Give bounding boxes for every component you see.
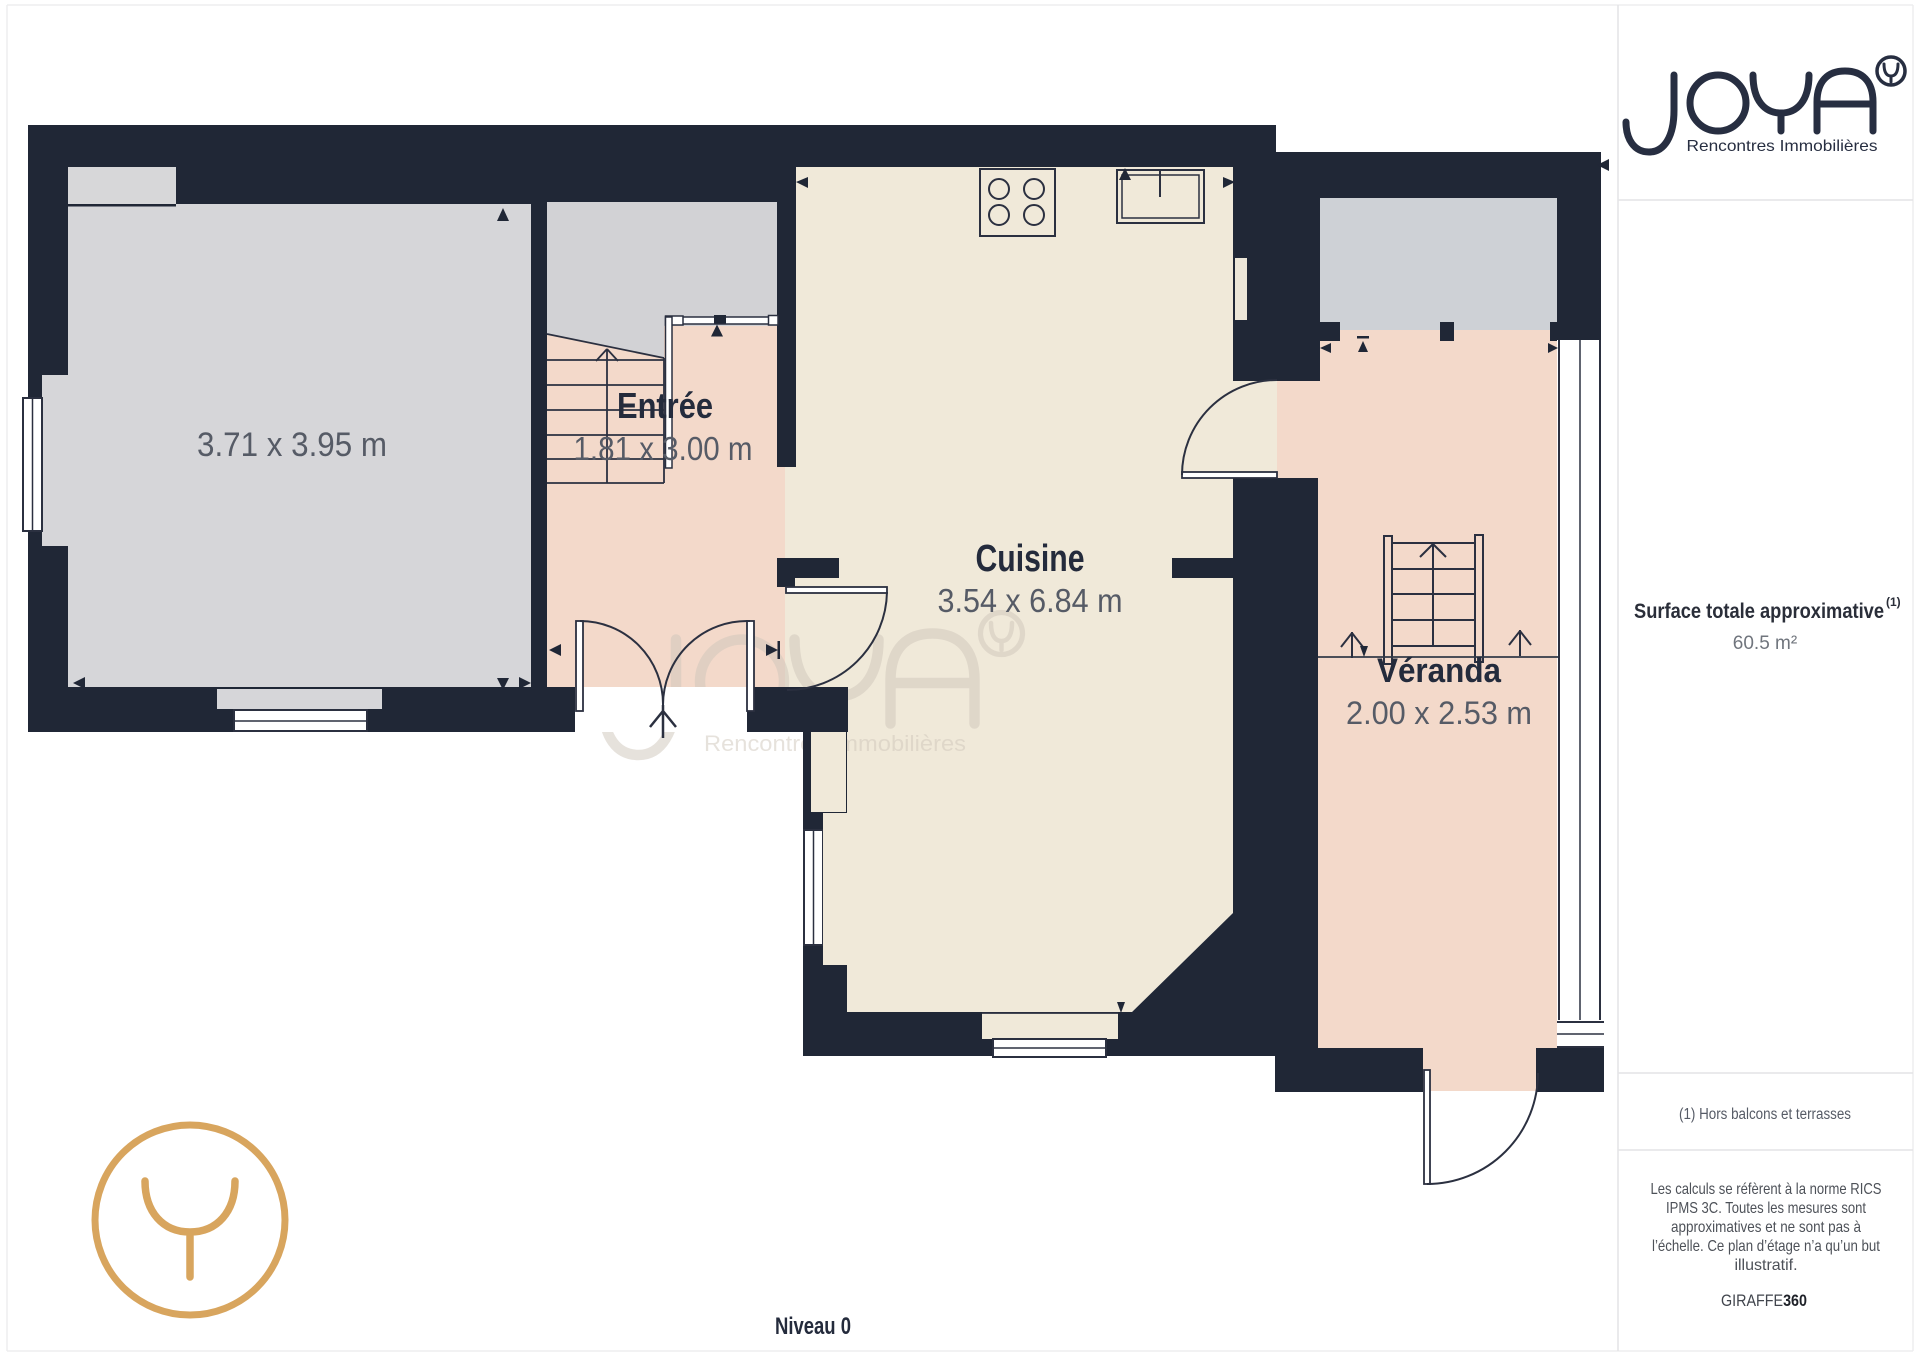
svg-text:Surface totale approximative: Surface totale approximative [1634, 600, 1884, 623]
svg-text:Entrée: Entrée [617, 385, 713, 426]
svg-text:l’échelle. Ce plan d’étage n’a: l’échelle. Ce plan d’étage n’a qu’un but [1652, 1238, 1880, 1255]
svg-text:Véranda: Véranda [1377, 652, 1502, 690]
svg-text:2.00 x 2.53 m: 2.00 x 2.53 m [1346, 695, 1532, 731]
svg-text:60.5 m²: 60.5 m² [1733, 633, 1797, 654]
svg-text:IPMS 3C. Toutes les mesures so: IPMS 3C. Toutes les mesures sont [1666, 1200, 1866, 1217]
svg-text:3.71 x 3.95 m: 3.71 x 3.95 m [197, 426, 387, 464]
svg-text:approximatives et ne sont pas: approximatives et ne sont pas à [1671, 1219, 1861, 1236]
svg-text:(1): (1) [1886, 595, 1901, 609]
svg-text:3.54 x 6.84 m: 3.54 x 6.84 m [938, 582, 1123, 619]
svg-text:GIRAFFE360: GIRAFFE360 [1721, 1292, 1807, 1310]
svg-text:1.81 x 3.00 m: 1.81 x 3.00 m [574, 430, 753, 467]
svg-text:illustratif.: illustratif. [1734, 1257, 1797, 1274]
svg-text:Niveau 0: Niveau 0 [775, 1313, 851, 1340]
svg-text:(1) Hors balcons et terrasses: (1) Hors balcons et terrasses [1679, 1106, 1851, 1123]
svg-text:Les calculs se réfèrent à la n: Les calculs se réfèrent à la norme RICS [1651, 1181, 1882, 1198]
svg-text:Cuisine: Cuisine [976, 538, 1085, 580]
